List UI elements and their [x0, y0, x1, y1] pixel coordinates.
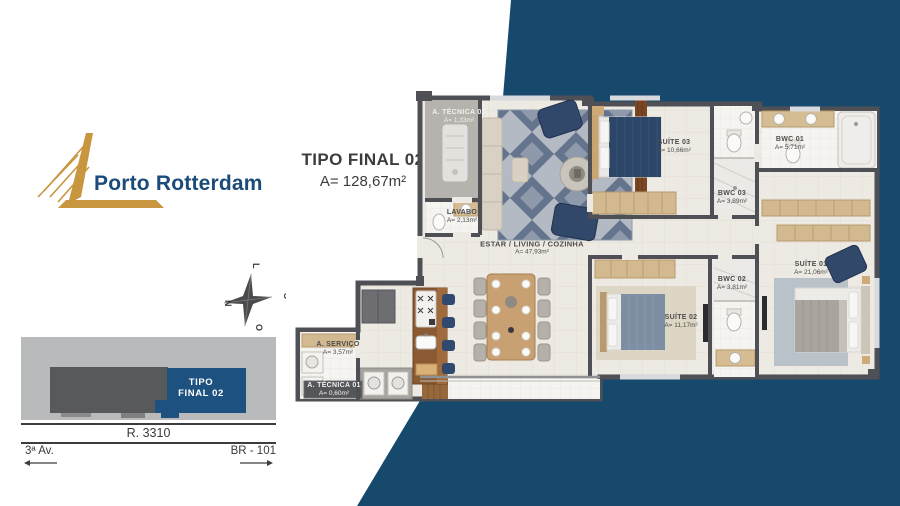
- porto-rotterdam-bridge-icon: [36, 127, 164, 211]
- label-servico: A. SERVIÇOA= 3,57m²: [316, 341, 359, 357]
- label-tech02: A. TÉCNICA 02A= 1,33m²: [432, 109, 485, 125]
- label-suite02: SUÍTE 02A= 11,17m²: [664, 314, 697, 330]
- label-tech01: A. TÉCNICA 01A= 0,60m²: [307, 382, 360, 398]
- label-suite03: SUÍTE 03A= 10,66m²: [657, 139, 691, 155]
- street-left-label: 3ª Av.: [25, 445, 54, 457]
- tech02-fixtures: [442, 124, 468, 182]
- site-unit-highlight-label: TIPO FINAL 02: [160, 377, 242, 399]
- compass-letter-n: N: [223, 300, 233, 307]
- label-bwc01: BWC 01A= 5,71m²: [775, 136, 805, 152]
- street-line-bottom: [21, 442, 276, 444]
- compass-rose: L S O N: [210, 260, 286, 340]
- label-living: ESTAR / LIVING / COZINHAA= 47,93m²: [480, 240, 584, 257]
- label-suite01: SUÍTE 01A= 21,06m²: [794, 261, 828, 277]
- floorplan-page: Porto Rotterdam TIPO FINAL 02 A= 128,67m…: [0, 0, 900, 506]
- street-right-label: BR - 101: [196, 445, 276, 457]
- balcony-floor: [422, 379, 600, 399]
- compass-letter-l: L: [251, 263, 261, 269]
- label-lavabo: LAVABOA= 2,13m²: [447, 209, 477, 225]
- label-bwc02: BWC 02A= 3,81m²: [717, 276, 747, 292]
- compass-letter-s: S: [282, 293, 286, 299]
- street-line-top: [21, 423, 276, 425]
- compass-letter-o: O: [254, 324, 264, 331]
- street-direction-arrows: [21, 458, 276, 468]
- label-bwc03: BWC 03A= 3,89m²: [717, 190, 747, 206]
- street-front-label: R. 3310: [21, 426, 276, 440]
- logo-wordmark: Porto Rotterdam: [94, 172, 263, 196]
